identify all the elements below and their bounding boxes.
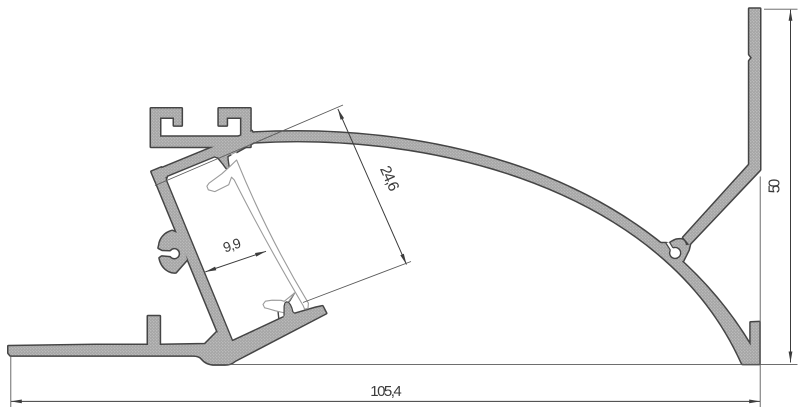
svg-text:50: 50	[767, 178, 784, 193]
svg-text:105,4: 105,4	[370, 383, 402, 400]
